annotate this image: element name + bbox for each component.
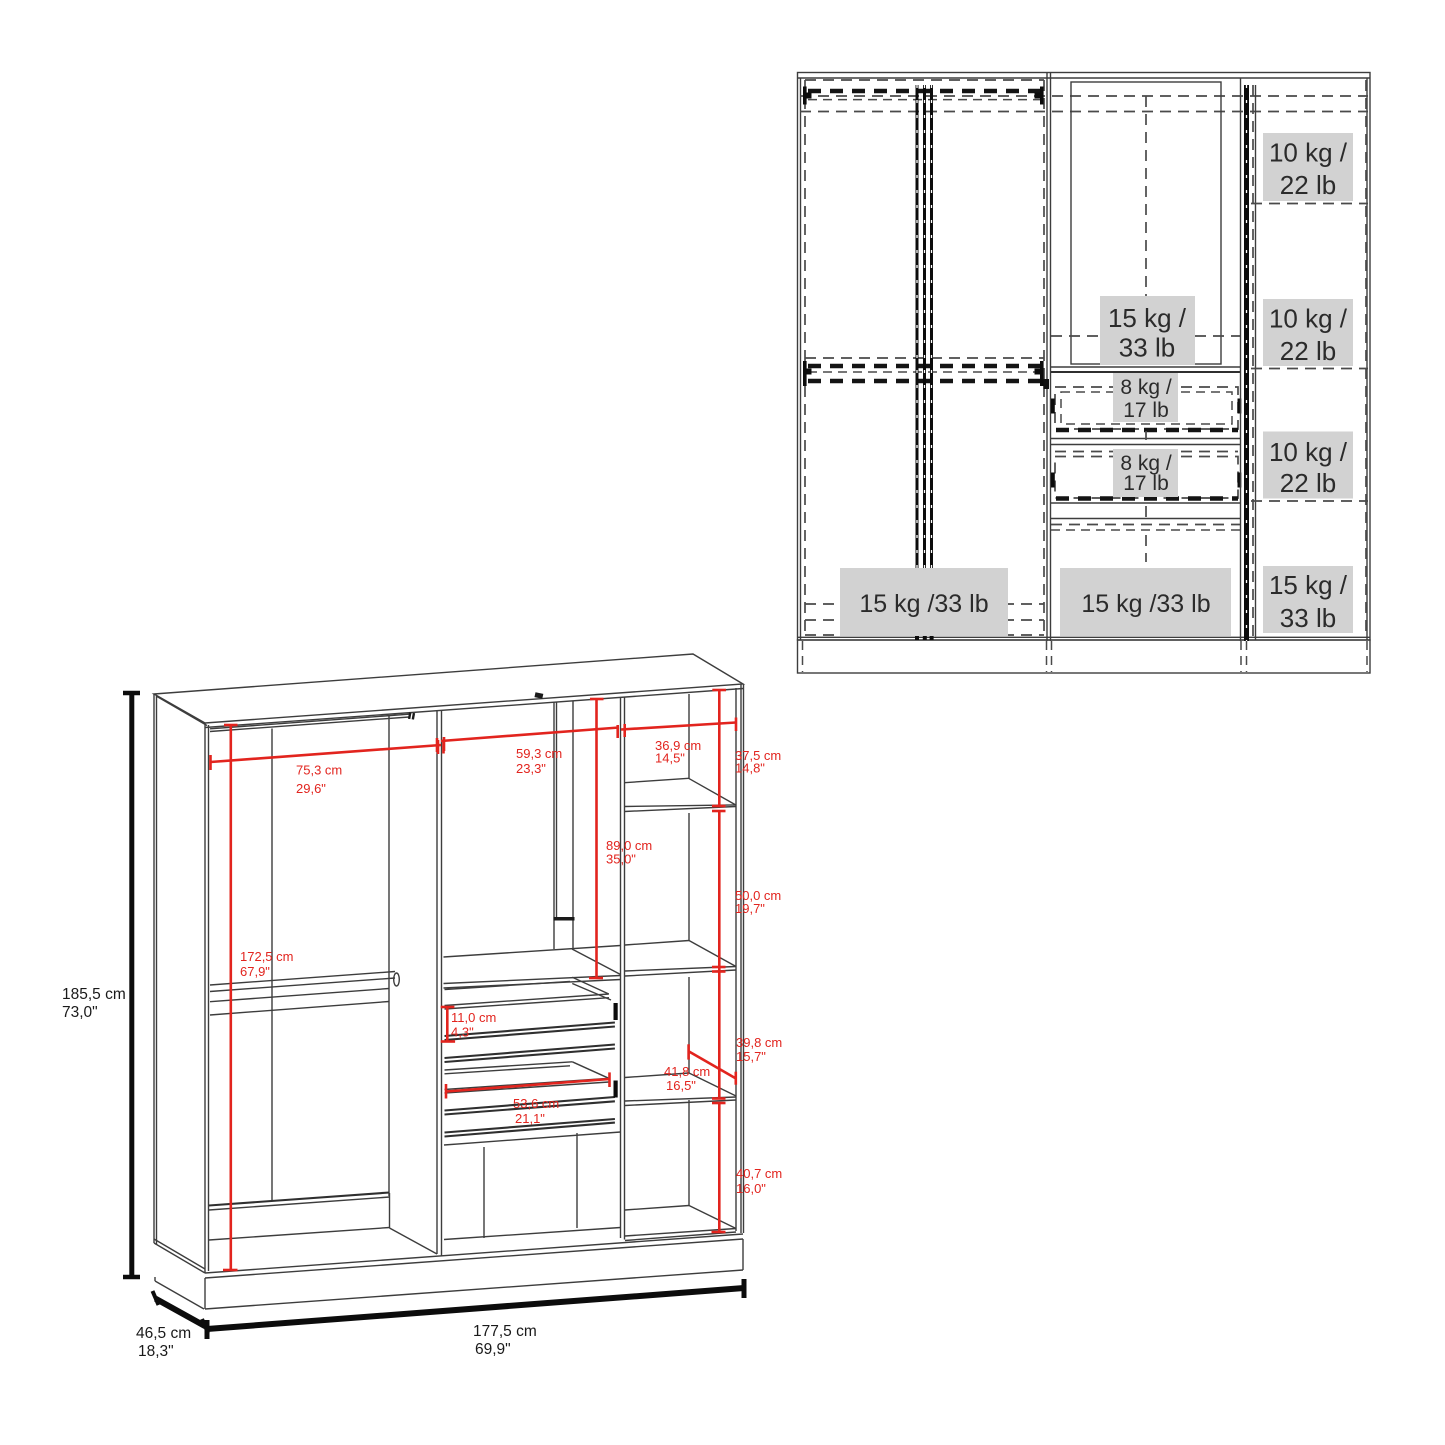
svg-text:33 lb: 33 lb	[1280, 603, 1336, 633]
svg-text:17 lb: 17 lb	[1123, 399, 1169, 422]
svg-text:73,0": 73,0"	[62, 1004, 98, 1021]
svg-text:75,3 cm: 75,3 cm	[296, 763, 342, 778]
svg-text:10 kg /: 10 kg /	[1269, 138, 1348, 168]
svg-text:46,5 cm: 46,5 cm	[136, 1325, 191, 1342]
svg-text:33 lb: 33 lb	[1119, 333, 1175, 363]
svg-text:22 lb: 22 lb	[1280, 468, 1336, 498]
svg-text:39,8 cm: 39,8 cm	[736, 1035, 782, 1050]
svg-text:16,5": 16,5"	[666, 1078, 696, 1093]
svg-text:22 lb: 22 lb	[1280, 336, 1336, 366]
svg-text:16,0": 16,0"	[736, 1181, 766, 1196]
svg-text:29,6": 29,6"	[296, 781, 326, 796]
svg-text:4,3": 4,3"	[451, 1025, 474, 1040]
svg-text:15 kg /: 15 kg /	[1269, 570, 1348, 600]
svg-text:177,5 cm: 177,5 cm	[473, 1323, 537, 1340]
svg-text:15,7": 15,7"	[736, 1049, 766, 1064]
svg-text:67,9": 67,9"	[240, 964, 270, 979]
svg-text:15 kg /33 lb: 15 kg /33 lb	[1081, 590, 1210, 618]
svg-text:10 kg /: 10 kg /	[1269, 437, 1348, 467]
svg-text:15 kg /: 15 kg /	[1108, 303, 1187, 333]
svg-text:19,7": 19,7"	[735, 901, 765, 916]
svg-text:172,5 cm: 172,5 cm	[240, 949, 293, 964]
svg-text:21,1": 21,1"	[515, 1111, 545, 1126]
svg-text:11,0 cm: 11,0 cm	[451, 1010, 496, 1025]
svg-text:14,8": 14,8"	[735, 761, 765, 776]
svg-text:14,5": 14,5"	[655, 751, 685, 766]
svg-text:41,8 cm: 41,8 cm	[664, 1064, 710, 1079]
svg-text:185,5 cm: 185,5 cm	[62, 986, 126, 1003]
svg-text:69,9": 69,9"	[475, 1341, 511, 1358]
svg-text:8 kg /: 8 kg /	[1120, 376, 1172, 399]
svg-text:53,6 cm: 53,6 cm	[513, 1096, 559, 1111]
svg-text:40,7 cm: 40,7 cm	[736, 1166, 782, 1181]
svg-text:23,3": 23,3"	[516, 761, 546, 776]
svg-text:17 lb: 17 lb	[1123, 472, 1169, 495]
svg-text:22 lb: 22 lb	[1280, 170, 1336, 200]
svg-text:35,0": 35,0"	[606, 852, 636, 867]
svg-text:59,3 cm: 59,3 cm	[516, 746, 562, 761]
svg-text:10 kg /: 10 kg /	[1269, 304, 1348, 334]
svg-text:18,3": 18,3"	[138, 1343, 174, 1360]
svg-text:15 kg /33 lb: 15 kg /33 lb	[859, 590, 988, 618]
